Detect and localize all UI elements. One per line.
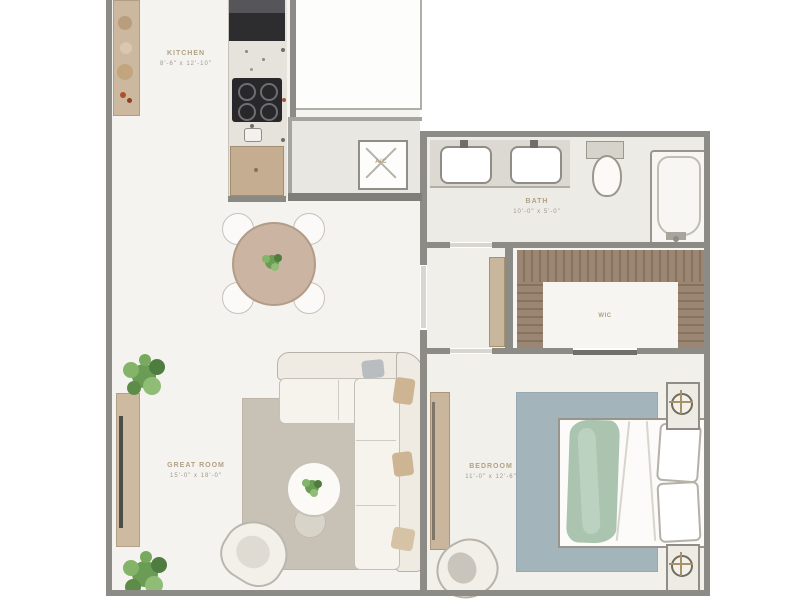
wall-bath-bottom [420, 242, 450, 248]
counter-decor-fruit [120, 92, 126, 98]
wall-wic-top [492, 242, 710, 248]
bedroom-label: BEDROOM [469, 463, 513, 470]
throw-pillow [392, 451, 415, 477]
wall-utility-bottom [288, 193, 422, 201]
lamp-icon [671, 555, 693, 577]
wall-wic-bottom [513, 348, 573, 354]
throw-pillow [392, 377, 415, 406]
bed-pillow [656, 423, 702, 484]
counter-speckle [262, 58, 265, 61]
wall-kitchen-right [290, 0, 296, 117]
faucet-icon [250, 124, 254, 128]
plant-icon [298, 473, 326, 501]
doorway-threshold [421, 266, 426, 328]
sofa-cushion-divider [356, 505, 396, 506]
wardrobe [678, 282, 704, 348]
burner-icon [260, 103, 278, 121]
counter-decor-bowl [120, 42, 132, 54]
exterior-void [294, 0, 422, 110]
floor-plan: KITCHEN 8'-6" x 12'-10" GREAT ROOM [0, 0, 800, 600]
counter-speckle [245, 50, 248, 53]
lamp-icon [680, 552, 682, 576]
wall-entry-bottom [492, 348, 513, 354]
wall-bottom [106, 590, 710, 596]
faucet-icon [530, 140, 538, 148]
door-leaf [489, 257, 505, 347]
great-room-label: GREAT ROOM [167, 462, 225, 469]
tv [119, 416, 123, 528]
throw-pillow [361, 359, 385, 379]
refrigerator [229, 13, 285, 41]
refrigerator [229, 0, 285, 14]
backsplash-item [281, 48, 285, 52]
counter-decor-bowl [118, 16, 132, 30]
kitchen-label: KITCHEN [167, 50, 205, 57]
burner-icon [260, 83, 278, 101]
wardrobe [517, 282, 543, 348]
wall-right [704, 131, 710, 596]
counter-end-edge [228, 196, 286, 202]
burner-icon [238, 103, 256, 121]
ac-label: A/C [375, 159, 387, 165]
counter-speckle [250, 68, 253, 71]
wall-left [106, 0, 112, 596]
bathroom-sink [440, 146, 492, 184]
wall-utility-top [288, 117, 422, 121]
wall-main-vertical [420, 330, 427, 590]
throw-pillow [390, 526, 415, 551]
faucet-icon [460, 140, 468, 148]
toilet-bowl [592, 155, 622, 197]
wall-entry-bottom [420, 348, 450, 354]
sofa-cushion-divider [338, 380, 339, 420]
great-room-dims: 15'-0" x 18'-0" [170, 473, 222, 479]
bathtub-basin [657, 156, 701, 236]
doorway-threshold [450, 349, 492, 353]
doorway-threshold [450, 243, 492, 247]
bedroom-dims: 11'-0" x 12'-6" [465, 474, 516, 480]
wall-entry-right [505, 242, 513, 354]
kitchen-dims: 8'-6" x 12'-10" [160, 61, 212, 67]
lamp-icon [680, 390, 682, 414]
wic-threshold [573, 350, 637, 355]
wall-utility-left [288, 117, 292, 197]
dresser-edge [432, 402, 435, 540]
bath-dims: 10'-0" x 5'-0" [513, 209, 561, 215]
backsplash-item [281, 138, 285, 142]
kitchen-sink [244, 128, 262, 142]
bath-label: BATH [526, 198, 549, 205]
plant-icon [118, 352, 170, 402]
wall-wic-bottom [637, 348, 710, 354]
sofa-cushion-divider [356, 440, 396, 441]
wic-label: WIC [598, 313, 611, 319]
bed-pillow [656, 481, 701, 543]
lamp-icon [671, 393, 693, 415]
wardrobe [517, 250, 704, 282]
counter-decor-bowl [117, 64, 133, 80]
burner-icon [238, 83, 256, 101]
counter-decor-fruit [127, 98, 132, 103]
backsplash-item [282, 98, 286, 102]
bathroom-sink [510, 146, 562, 184]
plant-icon [258, 248, 286, 276]
cabinet-handle [254, 168, 258, 172]
wall-top-right [420, 131, 710, 137]
